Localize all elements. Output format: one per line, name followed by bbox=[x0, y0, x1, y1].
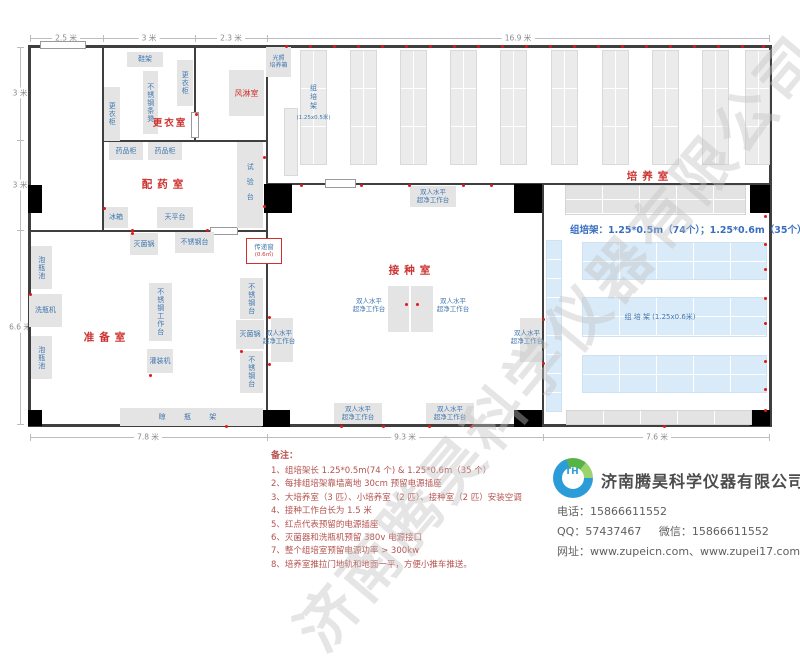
power-outlet-dot bbox=[268, 316, 271, 319]
culture-rack-south bbox=[565, 185, 746, 215]
clean-bench-south-1: 双人水平 超净工作台 bbox=[334, 403, 382, 424]
culture-room-label: 培养室 bbox=[627, 169, 674, 184]
inoculation-north-door bbox=[325, 179, 356, 188]
bottle-washer: 洗瓶机 bbox=[29, 294, 62, 327]
power-outlet-dot bbox=[645, 45, 648, 48]
culture-rack-column bbox=[500, 50, 527, 165]
dim-tick bbox=[17, 424, 24, 425]
note-item: 5、红点代表预留的电源插座 bbox=[271, 519, 571, 532]
wardrobe-right: 更衣柜 bbox=[177, 60, 193, 106]
culture-rack-small-size: (1.25x0.5米) bbox=[296, 113, 330, 121]
culture-rack-small-label: 组培架 (1.25x0.5米) bbox=[296, 84, 331, 121]
transfer-window-label: 传递窗 bbox=[254, 244, 274, 251]
prep-room-label: 准备室 bbox=[84, 330, 131, 345]
stainless-table-a: 不锈钢台 bbox=[175, 232, 214, 253]
inoculation-room-label: 接种室 bbox=[389, 263, 436, 278]
power-outlet-dot bbox=[542, 318, 545, 321]
column bbox=[514, 184, 542, 213]
culture-rack-column bbox=[745, 50, 770, 165]
column bbox=[750, 185, 770, 213]
culture-rack-column bbox=[551, 50, 578, 165]
power-outlet-dot bbox=[195, 113, 198, 116]
clean-bench-center-left-box bbox=[388, 286, 410, 332]
power-outlet-dot bbox=[408, 184, 411, 187]
culture-rack-column bbox=[400, 50, 427, 165]
power-outlet-dot bbox=[764, 409, 767, 412]
dim-bottom-3: 7.6 米 bbox=[643, 432, 671, 443]
company-logo-text: TH bbox=[565, 467, 579, 477]
blue-rack-row-3 bbox=[582, 355, 767, 393]
power-outlet-dot bbox=[382, 425, 385, 428]
power-outlet-dot bbox=[263, 205, 266, 208]
power-outlet-dot bbox=[416, 303, 419, 306]
power-outlet-dot bbox=[149, 374, 152, 377]
transfer-window: 传递窗 (0.6㎡) bbox=[246, 238, 282, 264]
power-outlet-dot bbox=[477, 45, 480, 48]
dim-tick bbox=[17, 230, 24, 231]
stainless-table-b: 不锈钢台 bbox=[240, 278, 263, 319]
power-outlet-dot bbox=[263, 156, 266, 159]
dim-bottom-2: 9.3 米 bbox=[391, 432, 419, 443]
power-outlet-dot bbox=[764, 268, 767, 271]
dim-top-4: 16.9 米 bbox=[502, 33, 535, 44]
note-item: 6、灭菌器和洗瓶机预留 380v 电源接口 bbox=[271, 532, 571, 545]
note-item: 8、培养室推拉门地轨和地面一平，方便小推车推送。 bbox=[271, 559, 571, 572]
culture-rack-big-label: 组 培 架 (1.25x0.6米) bbox=[600, 313, 720, 321]
wall-left-block-east bbox=[266, 45, 268, 427]
power-outlet-dot bbox=[381, 45, 384, 48]
medicine-cabinet-1: 药品柜 bbox=[109, 142, 143, 160]
power-outlet-dot bbox=[525, 45, 528, 48]
fridge: 冰箱 bbox=[104, 207, 128, 228]
power-outlet-dot bbox=[762, 45, 765, 48]
column bbox=[514, 410, 542, 427]
note-item: 7、整个组培室预留电源功率 > 300kw bbox=[271, 545, 571, 558]
power-outlet-dot bbox=[693, 45, 696, 48]
power-outlet-dot bbox=[621, 45, 624, 48]
note-item: 4、接种工作台长为 1.5 米 bbox=[271, 505, 571, 518]
power-outlet-dot bbox=[103, 207, 106, 210]
dim-tick bbox=[769, 35, 770, 42]
clean-bench-east-label: 双人水平 超净工作台 bbox=[504, 330, 550, 346]
stainless-worktable: 不锈钢工作台 bbox=[149, 283, 172, 341]
column bbox=[28, 410, 42, 426]
dim-top-2: 3 米 bbox=[139, 33, 160, 44]
power-outlet-dot bbox=[240, 350, 243, 353]
power-outlet-dot bbox=[309, 45, 312, 48]
company-name: 济南腾昊科学仪器有限公司 bbox=[601, 468, 800, 492]
dim-tick bbox=[17, 47, 24, 48]
power-outlet-dot bbox=[453, 45, 456, 48]
phone-value: 15866611552 bbox=[590, 505, 667, 518]
power-outlet-dot bbox=[29, 293, 32, 296]
dim-line-left bbox=[20, 47, 21, 425]
power-outlet-dot bbox=[764, 243, 767, 246]
dispensing-room-label: 配药室 bbox=[142, 177, 189, 192]
note-item: 1、组培架长 1.25*0.5m(74 个) & 1.25*0.6m（35 个） bbox=[271, 465, 571, 478]
clean-bench-center-right-label: 双人水平 超净工作台 bbox=[434, 298, 472, 314]
clean-bench-south-2: 双人水平 超净工作台 bbox=[426, 403, 474, 424]
column bbox=[28, 185, 42, 213]
dim-tick bbox=[543, 434, 544, 441]
qq-wechat-line: QQ：57437467 微信：15866611552 bbox=[557, 523, 769, 539]
filling-machine: 灌装机 bbox=[147, 349, 173, 373]
clean-bench-west-label: 双人水平 超净工作台 bbox=[256, 330, 302, 346]
culture-rack-column bbox=[702, 50, 729, 165]
wechat-label: 微信： bbox=[659, 525, 692, 538]
power-outlet-dot bbox=[764, 388, 767, 391]
power-outlet-dot bbox=[131, 229, 134, 232]
power-outlet-dot bbox=[405, 45, 408, 48]
air-shower: 风淋室 bbox=[229, 70, 264, 116]
power-outlet-dot bbox=[669, 45, 672, 48]
medicine-cabinet-2: 药品柜 bbox=[148, 142, 182, 160]
power-outlet-dot bbox=[131, 232, 134, 235]
website-line: 网址：www.zupeicn.com、www.zupei17.com bbox=[557, 543, 800, 559]
wall-inoculation-east bbox=[542, 183, 544, 427]
power-outlet-dot bbox=[405, 303, 408, 306]
power-outlet-dot bbox=[573, 45, 576, 48]
clean-bench-center-left-label: 双人水平 超净工作台 bbox=[350, 298, 388, 314]
column bbox=[750, 410, 770, 426]
power-outlet-dot bbox=[285, 45, 288, 48]
company-logo: TH bbox=[553, 458, 593, 498]
transfer-window-size: (0.6㎡) bbox=[255, 252, 274, 258]
phone-label: 电话： bbox=[557, 505, 590, 518]
dim-tick bbox=[267, 434, 268, 441]
web-label: 网址： bbox=[557, 545, 590, 558]
column bbox=[264, 184, 292, 213]
wechat-value: 15866611552 bbox=[692, 525, 769, 538]
power-outlet-dot bbox=[225, 425, 228, 428]
power-outlet-dot bbox=[300, 184, 303, 187]
shoe-rack: 鞋架 bbox=[127, 52, 163, 67]
wall-outer-top bbox=[28, 45, 772, 48]
culture-rack-column bbox=[350, 50, 377, 165]
clean-bench-center-right-box bbox=[411, 286, 433, 332]
power-outlet-dot bbox=[764, 297, 767, 300]
dim-tick bbox=[267, 35, 268, 42]
entry-door bbox=[40, 41, 86, 49]
power-outlet-dot bbox=[360, 184, 363, 187]
wardrobe-left: 更衣柜 bbox=[104, 87, 120, 141]
rack-spec-text: 组培架：1.25*0.5m（74个）；1.25*0.6m（35个） bbox=[570, 222, 772, 236]
qq-value: 57437467 bbox=[585, 525, 641, 538]
power-outlet-dot bbox=[268, 363, 271, 366]
dim-tick bbox=[103, 35, 104, 42]
culture-rack-name: 组培架 bbox=[309, 84, 319, 111]
power-outlet-dot bbox=[501, 45, 504, 48]
power-outlet-dot bbox=[542, 362, 545, 365]
power-outlet-dot bbox=[206, 229, 209, 232]
power-outlet-dot bbox=[717, 45, 720, 48]
dim-tick bbox=[17, 140, 24, 141]
notes-block: 备注： 1、组培架长 1.25*0.5m(74 个) & 1.25*0.6m（3… bbox=[271, 448, 571, 572]
blue-rack-vertical bbox=[546, 240, 562, 412]
note-item: 2、每排组培架靠墙离地 30cm 预留电源插座 bbox=[271, 478, 571, 491]
dim-tick bbox=[30, 434, 31, 441]
bottom-gray-rack bbox=[566, 410, 752, 425]
power-outlet-dot bbox=[490, 184, 493, 187]
culture-rack-column bbox=[450, 50, 477, 165]
phone-line: 电话：15866611552 bbox=[557, 503, 667, 519]
power-outlet-dot bbox=[340, 425, 343, 428]
balance-table: 天平台 bbox=[157, 207, 193, 228]
power-outlet-dot bbox=[549, 45, 552, 48]
clean-bench-north: 双人水平 超净工作台 bbox=[410, 186, 456, 207]
dim-tick bbox=[769, 434, 770, 441]
power-outlet-dot bbox=[470, 425, 473, 428]
culture-rack-column bbox=[652, 50, 679, 165]
website-values: www.zupeicn.com、www.zupei17.com bbox=[590, 545, 800, 558]
power-outlet-dot bbox=[741, 45, 744, 48]
power-outlet-dot bbox=[429, 45, 432, 48]
dim-bottom-1: 7.8 米 bbox=[134, 432, 162, 443]
power-outlet-dot bbox=[663, 425, 666, 428]
culture-rack-column bbox=[602, 50, 629, 165]
dim-tick bbox=[30, 35, 31, 42]
dispensing-prep-door bbox=[210, 227, 238, 235]
power-outlet-dot bbox=[764, 215, 767, 218]
light-incubator: 光照 培养箱 bbox=[266, 47, 291, 77]
dim-tick bbox=[195, 35, 196, 42]
changing-room-label: 更衣室 bbox=[153, 115, 188, 129]
power-outlet-dot bbox=[462, 184, 465, 187]
power-outlet-dot bbox=[357, 45, 360, 48]
test-bench: 试验台 bbox=[237, 142, 263, 228]
power-outlet-dot bbox=[333, 45, 336, 48]
note-item: 3、大培养室（3 匹）、小培养室（2 匹）、接种室（2 匹）安装空调 bbox=[271, 492, 571, 505]
dim-top-3: 2.3 米 bbox=[217, 33, 245, 44]
bottle-soak-pool-2: 泡瓶池 bbox=[31, 336, 52, 379]
notes-title: 备注： bbox=[271, 448, 571, 461]
bottle-drying-rack: 晾 瓶 架 bbox=[120, 408, 263, 426]
stainless-table-c: 不锈钢台 bbox=[240, 351, 263, 393]
power-outlet-dot bbox=[764, 360, 767, 363]
column bbox=[262, 410, 290, 427]
power-outlet-dot bbox=[428, 425, 431, 428]
qq-label: QQ： bbox=[557, 525, 585, 538]
sterilizer-a: 灭菌锅 bbox=[130, 233, 158, 255]
power-outlet-dot bbox=[597, 45, 600, 48]
blue-rack-row-1 bbox=[582, 242, 767, 280]
bottle-soak-pool-1: 泡瓶池 bbox=[31, 246, 52, 289]
power-outlet-dot bbox=[764, 322, 767, 325]
